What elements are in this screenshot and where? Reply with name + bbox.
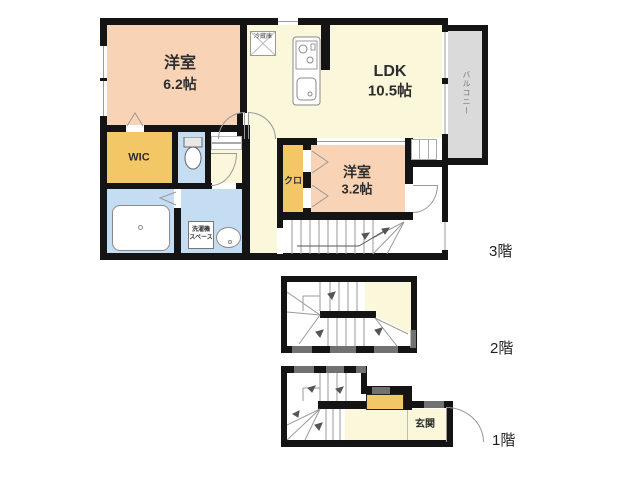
watermark-artifact bbox=[372, 387, 390, 394]
door-opening bbox=[303, 150, 311, 172]
window-partition bbox=[317, 138, 405, 145]
wic-folding-door-icon bbox=[127, 112, 144, 127]
watermark-artifact bbox=[292, 346, 312, 353]
balcony-wall bbox=[482, 25, 488, 165]
room-ldk-name: LDK bbox=[374, 64, 407, 80]
watermark-artifact bbox=[374, 346, 398, 353]
watermark-artifact bbox=[326, 366, 344, 373]
floor2-label: 2階 bbox=[490, 341, 513, 356]
window-bay-line bbox=[419, 139, 420, 160]
entrance-door-arc bbox=[446, 407, 484, 442]
closet-door-icon bbox=[311, 185, 330, 207]
room-western-6-2 bbox=[106, 24, 240, 125]
wall bbox=[277, 138, 317, 145]
refrigerator-label: 冷蔵庫 bbox=[254, 34, 272, 40]
window bbox=[100, 81, 107, 116]
door-arc-western32 bbox=[413, 185, 438, 213]
wall bbox=[283, 212, 413, 220]
wall bbox=[242, 132, 250, 254]
room-western32-size: 3.2帖 bbox=[341, 183, 372, 196]
washbasin-icon bbox=[216, 227, 241, 248]
window bbox=[442, 32, 448, 78]
wall bbox=[174, 208, 181, 254]
entrance-floor-line bbox=[407, 409, 408, 440]
floor-plan: 冷蔵庫 洗濯機 スペース bbox=[0, 0, 640, 480]
bath-folding-door-icon bbox=[159, 191, 177, 206]
wall bbox=[240, 24, 247, 113]
room-western62-name: 洋室 bbox=[164, 56, 196, 72]
hallway bbox=[247, 138, 277, 254]
bathtub-drain bbox=[138, 225, 143, 230]
window bbox=[442, 84, 448, 134]
room-western62-size: 6.2帖 bbox=[163, 77, 196, 91]
wall bbox=[100, 253, 448, 260]
room-closet-label: クロ bbox=[284, 177, 302, 186]
room-wic-label: WIC bbox=[128, 153, 149, 164]
room-ldk-size: 10.5帖 bbox=[368, 84, 412, 99]
laundry-label-2: スペース bbox=[189, 235, 212, 241]
window bbox=[278, 18, 298, 25]
door-opening bbox=[405, 184, 413, 212]
window-bay-line bbox=[428, 139, 429, 160]
toilet-icon bbox=[182, 137, 206, 173]
kitchen-wall bbox=[321, 24, 330, 70]
stairs-2f bbox=[287, 282, 411, 346]
washbasin-drain bbox=[228, 240, 232, 244]
watermark-artifact bbox=[424, 401, 444, 408]
window bbox=[100, 46, 107, 78]
wall bbox=[281, 440, 453, 447]
closet-door-icon bbox=[311, 151, 330, 173]
wall bbox=[100, 18, 448, 25]
watermark-artifact bbox=[330, 346, 356, 353]
room-western32-name: 洋室 bbox=[343, 165, 371, 179]
watermark-artifact bbox=[294, 366, 314, 373]
window bbox=[442, 222, 448, 250]
window-bay bbox=[411, 139, 437, 160]
floor3-label: 3階 bbox=[489, 244, 512, 259]
balcony-wall bbox=[448, 158, 488, 165]
floor1-label: 1階 bbox=[492, 433, 515, 448]
door-opening bbox=[303, 188, 311, 208]
wall bbox=[172, 132, 178, 183]
stairs-3f bbox=[283, 220, 413, 254]
watermark-artifact bbox=[410, 330, 416, 348]
laundry-label-1: 洗濯機 bbox=[192, 227, 210, 233]
kitchen-counter-icon bbox=[292, 36, 322, 106]
entrance-label: 玄関 bbox=[415, 420, 435, 430]
balcony-label: バルコニー bbox=[462, 71, 470, 116]
watermark-artifact bbox=[356, 366, 366, 373]
room-ldk bbox=[247, 24, 442, 138]
wall bbox=[100, 125, 218, 132]
shoe-cabinet bbox=[366, 394, 404, 410]
stairs-1f bbox=[287, 373, 347, 440]
